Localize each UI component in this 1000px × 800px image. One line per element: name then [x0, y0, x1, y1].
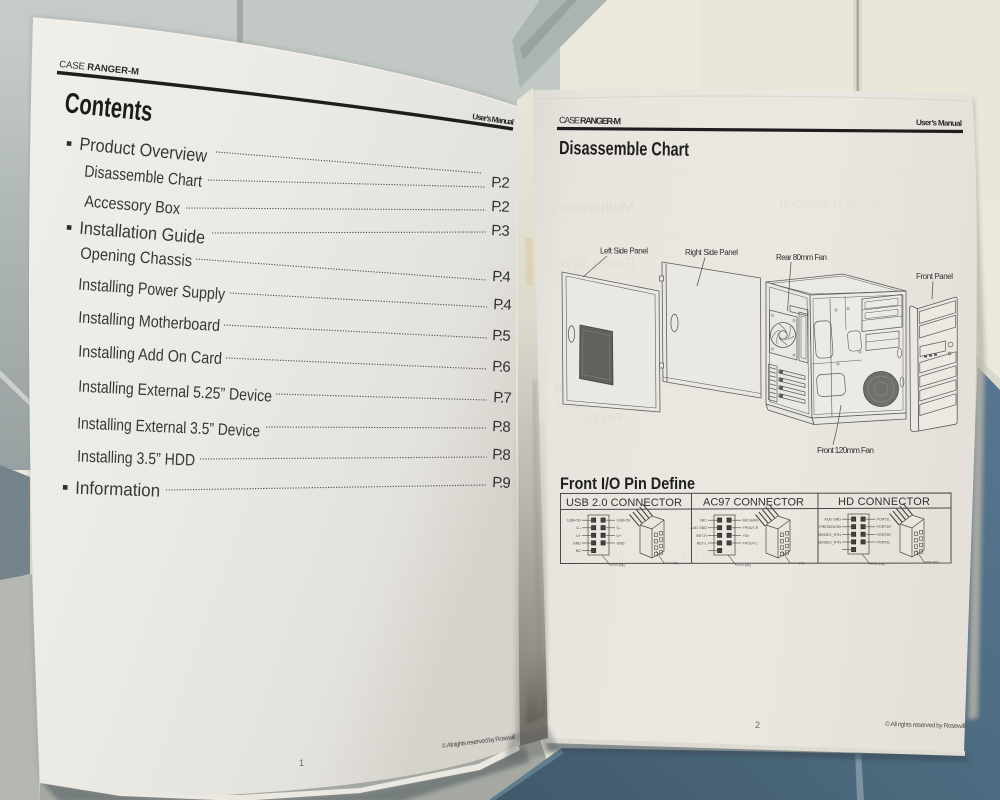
svg-text:GND: GND: [573, 541, 581, 545]
svg-text:P.8: P.8: [492, 418, 511, 436]
svg-text:P.2: P.2: [491, 174, 510, 192]
svg-text:Pin: Pin: [673, 561, 679, 566]
svg-text:P.8: P.8: [492, 446, 511, 464]
svg-text:Rear 80mm Fan: Rear 80mm Fan: [776, 253, 827, 262]
svg-text:PORT2R: PORT2R: [877, 533, 892, 537]
svg-text:8 x M/B standoff: 8 x M/B standoff: [779, 195, 880, 211]
svg-text:AUD GND: AUD GND: [824, 518, 841, 522]
svg-text:Front I/O Pin Define: Front I/O Pin Define: [560, 474, 695, 493]
svg-text:SENSE2_RTN: SENSE2_RTN: [817, 540, 841, 544]
svg-text:PORT1L: PORT1L: [877, 518, 891, 522]
svg-text:P.4: P.4: [493, 296, 512, 314]
svg-text:P.5: P.5: [492, 327, 511, 345]
svg-text:P.4: P.4: [492, 268, 511, 286]
svg-text:PORT2L: PORT2L: [877, 540, 891, 544]
svg-text:P.9: P.9: [492, 474, 511, 492]
svg-text:RET-L: RET-L: [697, 541, 707, 545]
svg-text:MIC: MIC: [700, 519, 707, 523]
svg-text:Front 120mm Fan: Front 120mm Fan: [817, 445, 874, 455]
svg-text:+5V: +5V: [743, 534, 750, 538]
svg-text:U–: U–: [617, 526, 622, 530]
svg-text:User’s Manual: User’s Manual: [916, 118, 962, 128]
svg-text:P.2: P.2: [491, 198, 510, 216]
svg-text:USB+5V: USB+5V: [617, 519, 631, 523]
svg-text:HD CONNECTOR: HD CONNECTOR: [838, 496, 930, 508]
svg-text:Pin: Pin: [799, 561, 805, 566]
svg-text:AC97 CONNECTOR: AC97 CONNECTOR: [703, 497, 804, 509]
svg-text:USB 2.0 CONNECTOR: USB 2.0 CONNECTOR: [566, 497, 682, 509]
svg-text:Pin: Pin: [933, 560, 939, 565]
svg-text:Floppy: Floppy: [582, 410, 622, 425]
svg-text:Pin: Pin: [879, 562, 885, 567]
svg-text:Left Side Panel: Left Side Panel: [600, 247, 648, 256]
svg-text:NC: NC: [576, 549, 582, 553]
svg-text:U+: U+: [576, 534, 581, 538]
svg-text:Motherboard: Motherboard: [549, 199, 634, 216]
svg-text:Power Supply: Power Supply: [542, 255, 635, 272]
svg-text:USB+5V: USB+5V: [567, 519, 581, 523]
svg-text:Pin: Pin: [745, 563, 751, 568]
svg-text:SENSE1_RTN: SENSE1_RTN: [817, 533, 841, 537]
svg-text:1: 1: [299, 758, 304, 768]
svg-text:U–: U–: [576, 526, 581, 530]
svg-text:2: 2: [755, 720, 760, 730]
svg-text:Pin: Pin: [619, 563, 625, 568]
svg-text:Disassemble Chart: Disassemble Chart: [559, 138, 690, 161]
svg-text:P.7: P.7: [493, 389, 512, 407]
svg-text:PORT1R: PORT1R: [877, 525, 892, 529]
svg-text:P.6: P.6: [492, 358, 511, 376]
svg-text:CASE RANGER-M: CASE RANGER-M: [559, 115, 621, 126]
svg-text:MIC-BIAS: MIC-BIAS: [743, 519, 760, 523]
svg-text:AUD GND: AUD GND: [690, 526, 707, 530]
svg-text:Front Panel: Front Panel: [916, 272, 953, 281]
svg-text:FPOUT-L: FPOUT-L: [743, 541, 758, 545]
svg-text:PRESENCE#: PRESENCE#: [819, 525, 841, 529]
svg-text:Right Side Panel: Right Side Panel: [685, 248, 738, 257]
svg-text:FPOUT-R: FPOUT-R: [743, 526, 759, 530]
svg-text:Information: Information: [75, 478, 161, 501]
svg-text:RET-R: RET-R: [696, 534, 707, 538]
svg-text:P.3: P.3: [491, 222, 510, 240]
svg-text:GND: GND: [617, 541, 625, 545]
svg-text:U+: U+: [617, 534, 622, 538]
